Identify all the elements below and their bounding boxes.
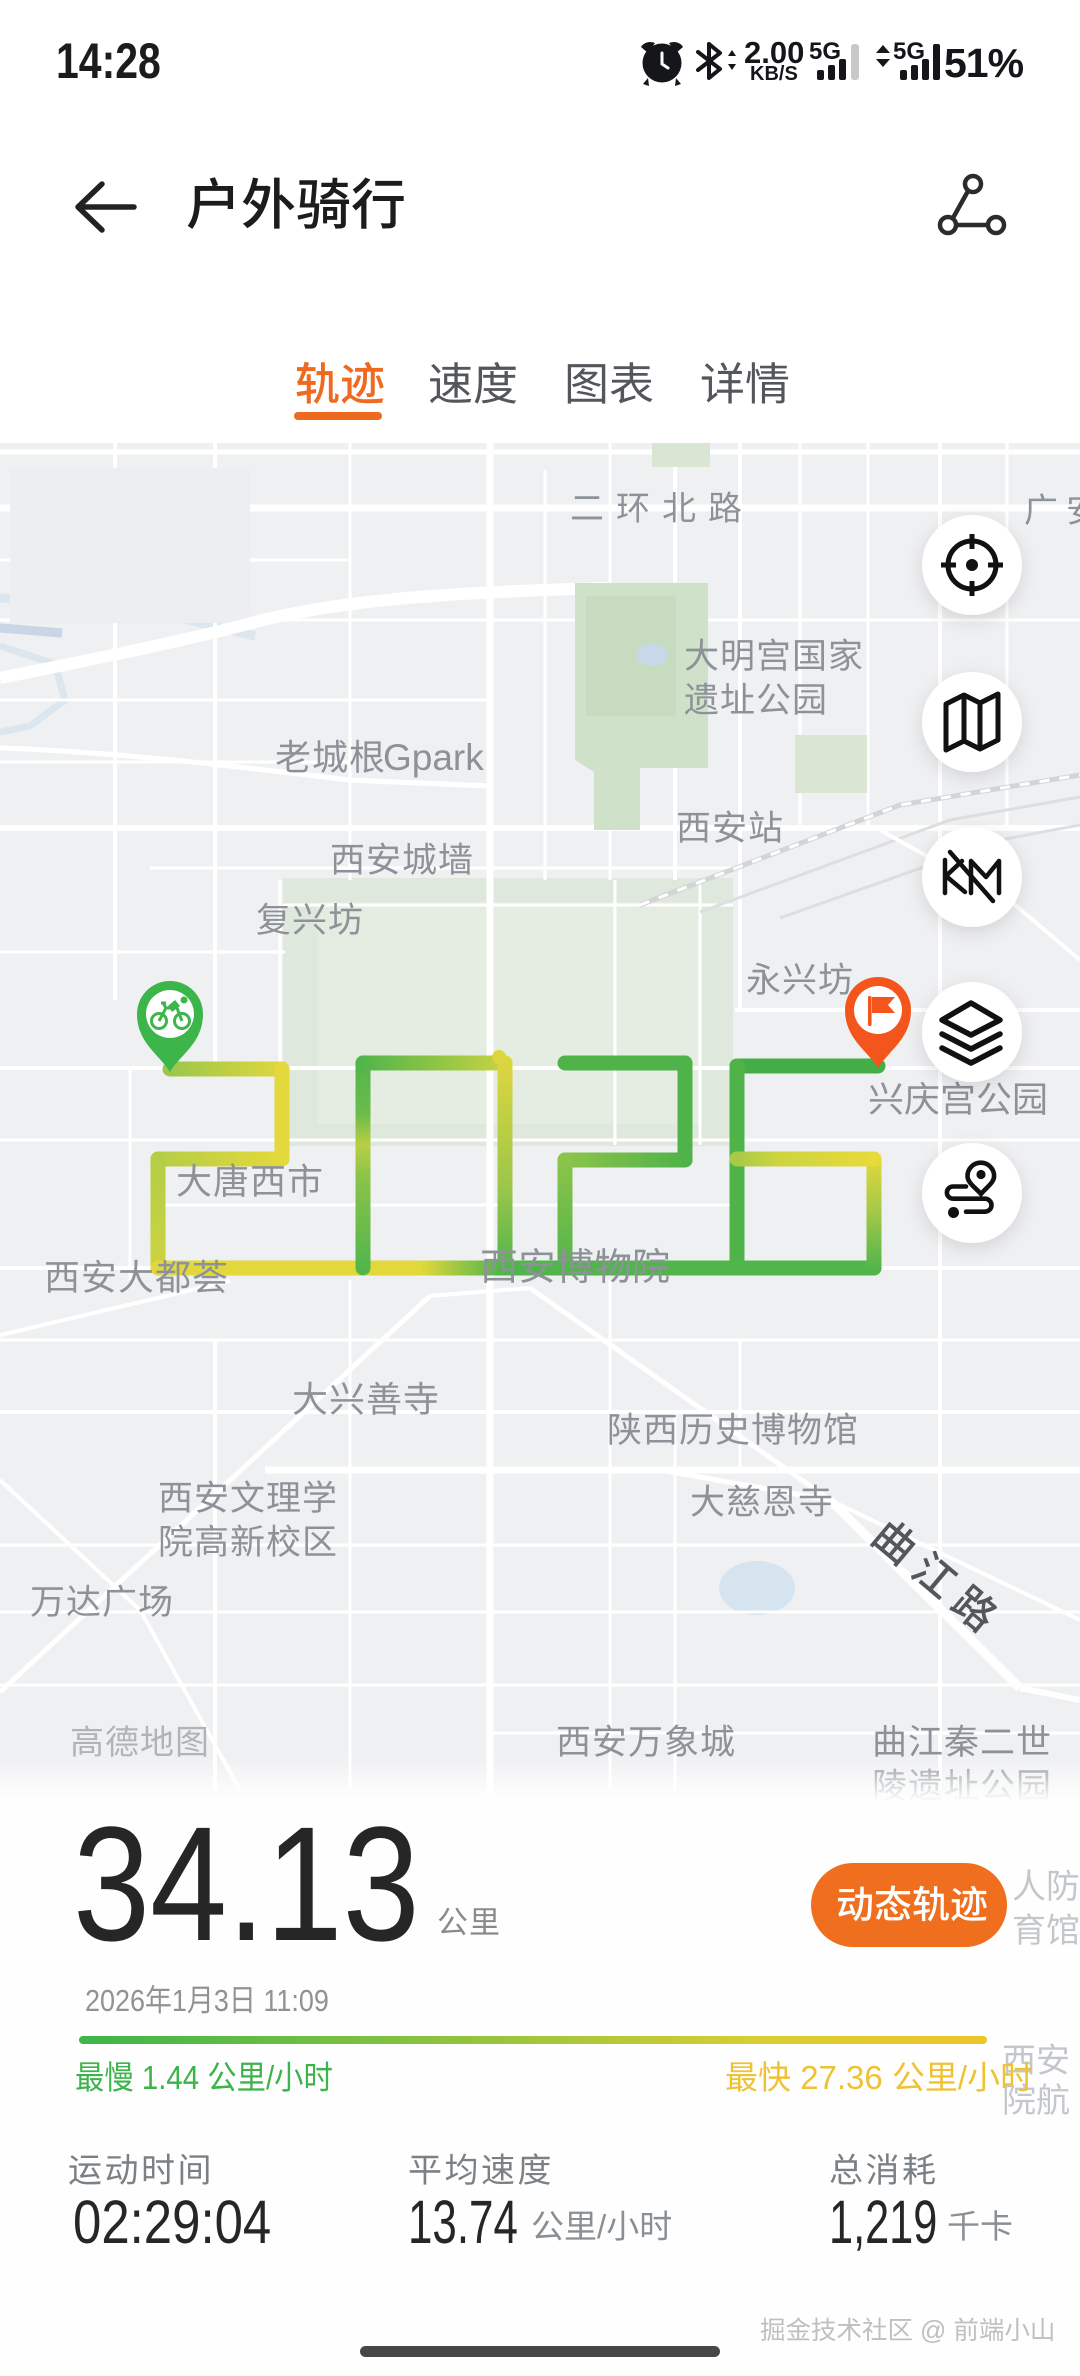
svg-text:3: 3	[214, 1984, 229, 2018]
svg-text:KB/S: KB/S	[750, 63, 798, 85]
svg-text:1.44: 1.44	[142, 2059, 199, 2096]
svg-text:13.74: 13.74	[408, 2189, 518, 2257]
svg-text:14:28: 14:28	[56, 33, 161, 89]
svg-text:1,219: 1,219	[829, 2189, 937, 2257]
svg-text:5G: 5G	[809, 38, 841, 65]
svg-text:/: /	[958, 2059, 968, 2096]
svg-text:/: /	[597, 2208, 607, 2245]
svg-text:02:29:04: 02:29:04	[73, 2188, 271, 2256]
svg-text:51%: 51%	[944, 40, 1024, 86]
svg-text:/: /	[266, 2059, 274, 2096]
svg-text:11:09: 11:09	[263, 1984, 328, 2018]
svg-text:5G: 5G	[893, 38, 925, 65]
svg-text:@: @	[920, 2315, 946, 2345]
svg-text:Gpark: Gpark	[383, 737, 484, 778]
svg-text:2026: 2026	[85, 1984, 145, 2018]
svg-text:27.36: 27.36	[800, 2059, 883, 2096]
svg-text:34.13: 34.13	[73, 1793, 420, 1975]
svg-text:1: 1	[172, 1984, 187, 2018]
